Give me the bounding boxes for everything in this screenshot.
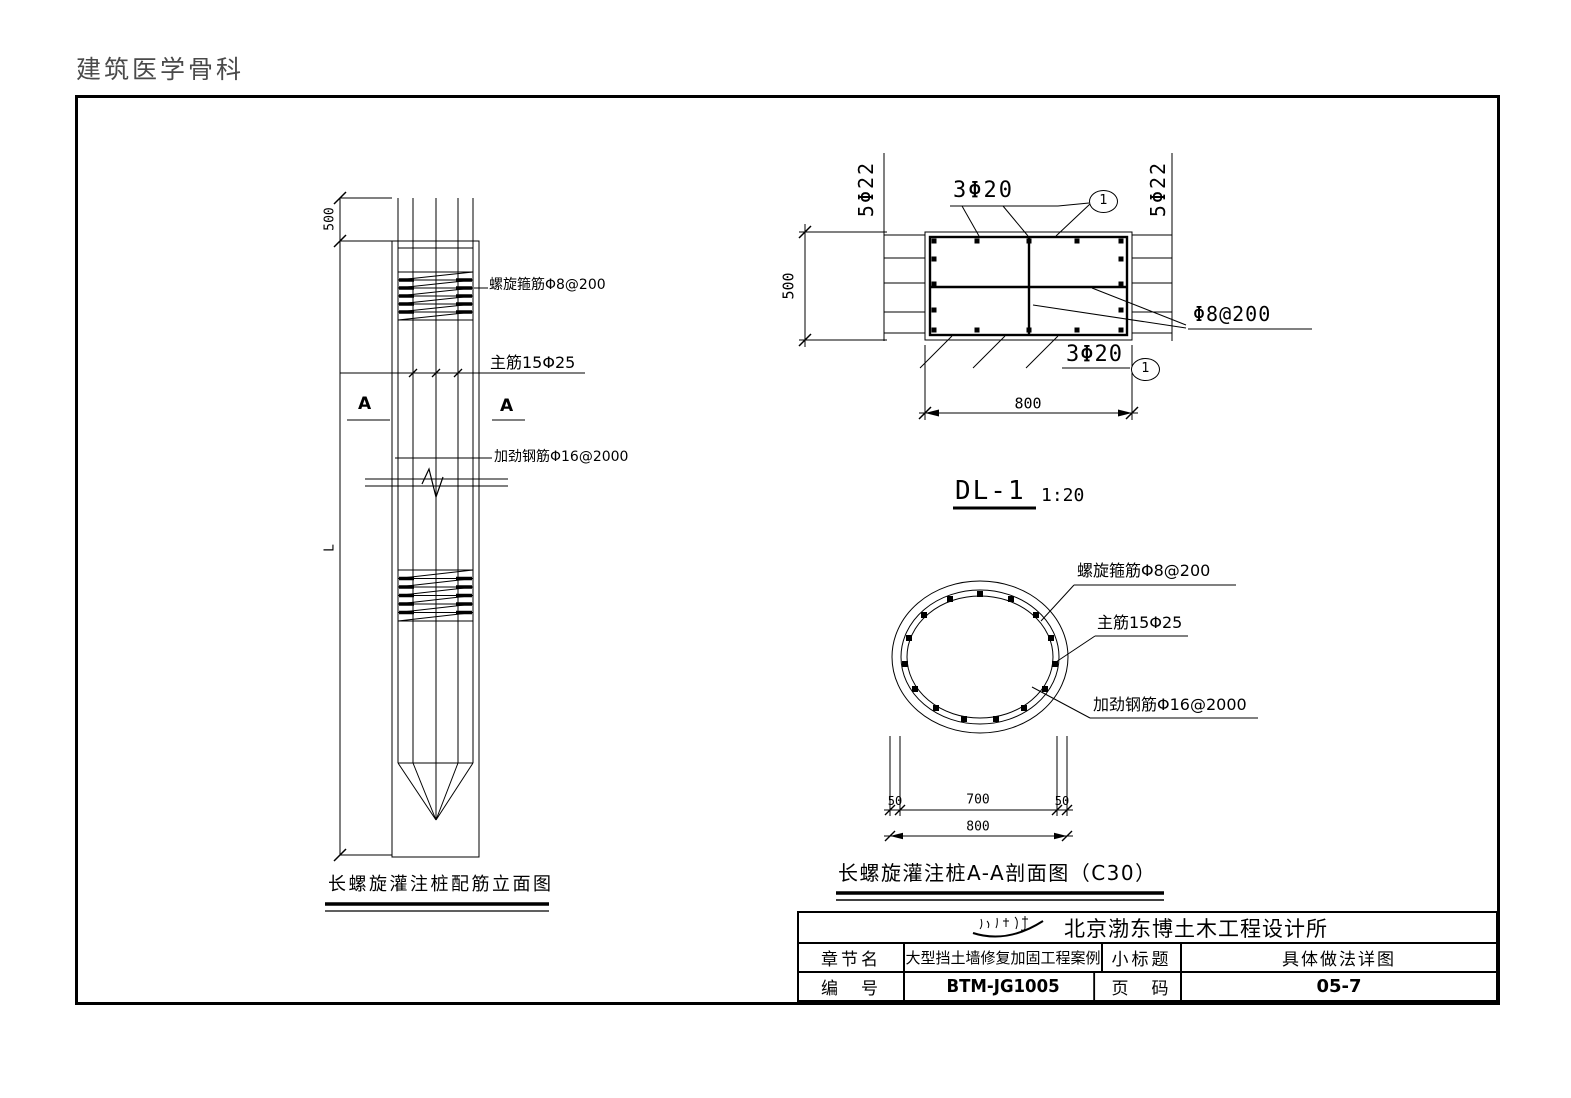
beam-dim-800: 800: [1014, 397, 1041, 412]
title-block-row-chapter: 章节名 大型挡土墙修复加固工程案例 小标题 具体做法详图: [799, 944, 1496, 973]
elevation-dim-L: L: [324, 544, 337, 552]
number-label: 编 号: [799, 973, 905, 1000]
beam-top-bars-label: 3Φ20: [953, 180, 1014, 202]
beam-left-bars-label: 5Φ22: [856, 161, 876, 217]
company-name: 北京渤东博土木工程设计所: [1064, 913, 1328, 943]
beam-detail-scale: 1:20: [1041, 487, 1084, 505]
elevation-spiral-label: 螺旋箍筋Φ8@200: [489, 278, 606, 292]
title-block-row-number: 编 号 BTM-JG1005 页 码 05-7: [799, 973, 1496, 1000]
elevation-dim-500: 500: [324, 207, 337, 230]
pile-elevation-drawing: [325, 192, 585, 911]
title-block-company-row: 北京渤东博土木工程设计所: [799, 913, 1496, 944]
beam-right-bars-label: 5Φ22: [1148, 161, 1168, 217]
pile-rebar-dots: [902, 591, 1058, 722]
beam-callout-top-number: 1: [1099, 193, 1107, 208]
section-spiral-label: 螺旋箍筋Φ8@200: [1077, 563, 1210, 579]
section-mark-a-right: A: [500, 398, 513, 415]
section-mark-a-left: A: [358, 396, 371, 413]
company-logo: [967, 915, 1052, 941]
beam-stirrup-label: Φ8@200: [1193, 304, 1271, 324]
beam-dim-500: 500: [782, 272, 797, 299]
section-dim-50-right: 50: [1055, 795, 1069, 807]
chapter-label: 章节名: [799, 944, 905, 971]
drawing-sheet: 建筑医学骨科: [0, 0, 1571, 1098]
chapter-value: 大型挡土墙修复加固工程案例: [905, 944, 1103, 971]
beam-callout-bottom: 1: [1131, 358, 1160, 381]
section-dim-800: 800: [966, 821, 989, 834]
elevation-mainbar-label: 主筋15Φ25: [490, 355, 575, 371]
subtitle-label: 小标题: [1103, 944, 1182, 971]
section-caption: 长螺旋灌注桩A-A剖面图（C30）: [838, 863, 1157, 883]
section-stiffener-label: 加劲钢筋Φ16@2000: [1093, 697, 1247, 713]
elevation-stiffener-label: 加劲钢筋Φ16@2000: [494, 450, 628, 464]
beam-detail-name: DL-1: [955, 478, 1026, 504]
beam-callout-top: 1: [1089, 190, 1118, 213]
number-value: BTM-JG1005: [913, 973, 1095, 1000]
pile-section-drawing: [836, 581, 1258, 900]
section-dim-700: 700: [966, 794, 989, 807]
subtitle-value: 具体做法详图: [1182, 944, 1496, 971]
page-value: 05-7: [1182, 973, 1496, 1000]
title-block: 北京渤东博土木工程设计所 章节名 大型挡土墙修复加固工程案例 小标题 具体做法详…: [797, 911, 1498, 1002]
beam-bottom-bars-label: 3Φ20: [1066, 344, 1123, 366]
elevation-caption: 长螺旋灌注桩配筋立面图: [328, 876, 554, 894]
page-label: 页 码: [1103, 973, 1182, 1000]
beam-callout-bottom-number: 1: [1141, 361, 1149, 376]
section-mainbar-label: 主筋15Φ25: [1097, 615, 1182, 631]
section-dim-50-left: 50: [888, 795, 902, 807]
beam-rebar-dots: [932, 239, 1124, 333]
